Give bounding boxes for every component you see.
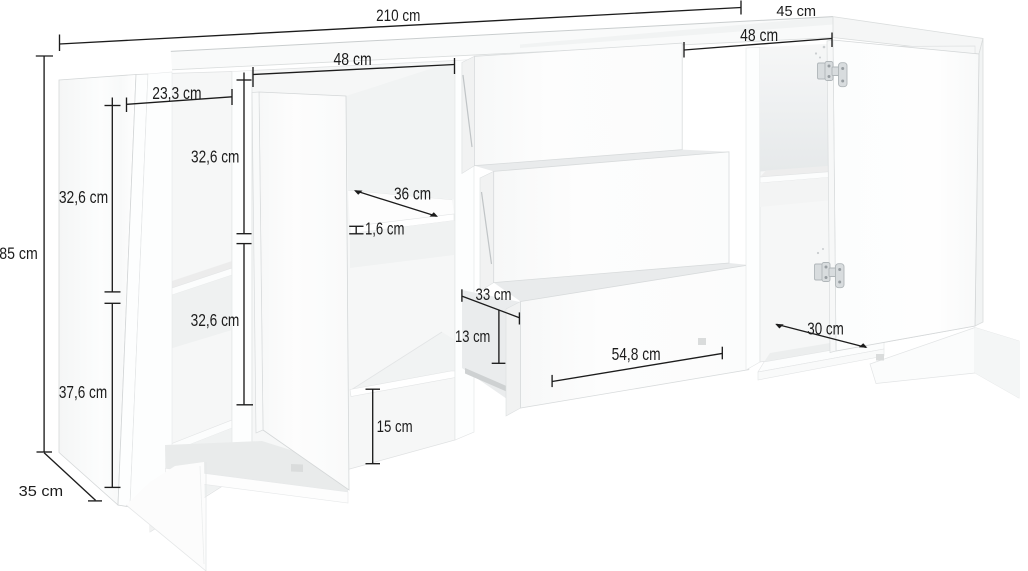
svg-text:15 cm: 15 cm <box>377 417 413 436</box>
svg-text:23,3 cm: 23,3 cm <box>152 83 201 103</box>
svg-text:35 cm: 35 cm <box>19 484 64 500</box>
svg-text:1,6 cm: 1,6 cm <box>365 219 405 239</box>
svg-text:33 cm: 33 cm <box>476 285 512 304</box>
svg-text:32,6 cm: 32,6 cm <box>191 147 239 167</box>
svg-text:30 cm: 30 cm <box>807 318 844 338</box>
svg-text:32,6 cm: 32,6 cm <box>59 187 108 207</box>
svg-text:45 cm: 45 cm <box>776 4 816 20</box>
svg-text:210 cm: 210 cm <box>376 6 420 25</box>
svg-text:37,6 cm: 37,6 cm <box>59 382 107 402</box>
svg-text:36 cm: 36 cm <box>394 183 431 203</box>
svg-text:48 cm: 48 cm <box>740 25 778 45</box>
svg-text:85 cm: 85 cm <box>0 245 38 263</box>
svg-text:32,6 cm: 32,6 cm <box>191 310 240 330</box>
svg-text:13 cm: 13 cm <box>455 327 490 346</box>
svg-text:54,8 cm: 54,8 cm <box>612 344 661 364</box>
svg-text:48 cm: 48 cm <box>334 49 372 69</box>
